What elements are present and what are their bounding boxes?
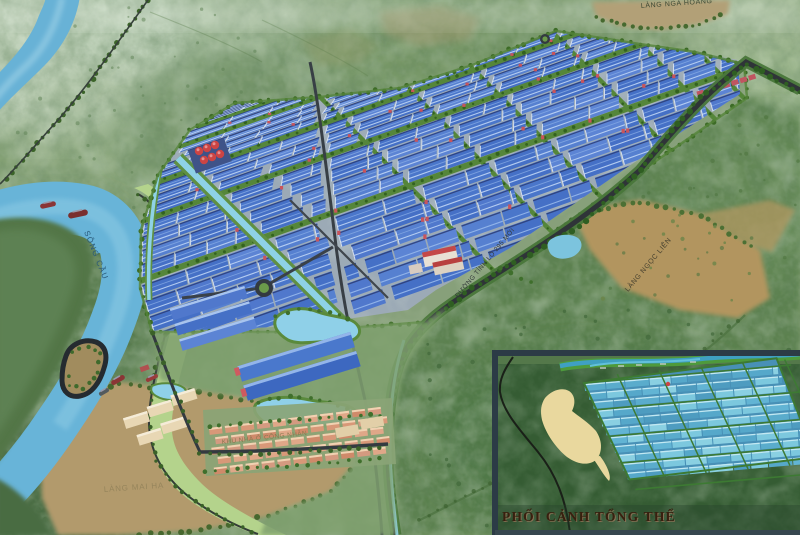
svg-text:PHỐI CẢNH TỔNG THỂ: PHỐI CẢNH TỔNG THỂ [502,509,676,524]
